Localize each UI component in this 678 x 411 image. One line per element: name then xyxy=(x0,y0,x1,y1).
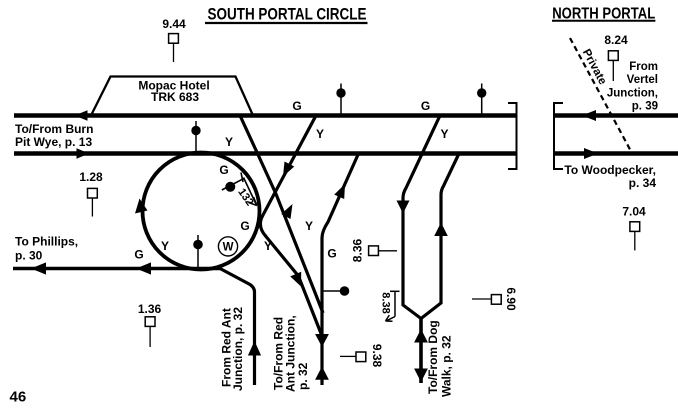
svg-text:8.38: 8.38 xyxy=(380,292,392,313)
svg-text:p. 30: p. 30 xyxy=(15,249,43,263)
svg-text:Y: Y xyxy=(225,135,233,149)
svg-text:9.44: 9.44 xyxy=(162,17,186,31)
svg-text:Vertel: Vertel xyxy=(627,74,658,86)
svg-text:G: G xyxy=(327,247,336,261)
svg-text:p. 32: p. 32 xyxy=(296,362,310,390)
svg-text:To Phillips,: To Phillips, xyxy=(15,235,78,249)
svg-text:Y: Y xyxy=(316,127,324,141)
svg-text:Y: Y xyxy=(440,127,448,141)
svg-text:p. 34: p. 34 xyxy=(629,176,657,190)
svg-text:SOUTH PORTAL CIRCLE: SOUTH PORTAL CIRCLE xyxy=(208,5,367,24)
svg-text:1.28: 1.28 xyxy=(79,170,103,184)
svg-text:G: G xyxy=(421,99,430,113)
svg-text:6.90: 6.90 xyxy=(504,287,518,311)
svg-text:To/From Burn: To/From Burn xyxy=(15,122,93,136)
svg-text:G: G xyxy=(219,163,228,177)
svg-text:p. 39: p. 39 xyxy=(632,101,658,113)
svg-text:TRK 683: TRK 683 xyxy=(151,90,199,104)
svg-text:G: G xyxy=(134,248,143,262)
svg-text:Pit Wye, p. 13: Pit Wye, p. 13 xyxy=(15,135,92,149)
svg-text:7.04: 7.04 xyxy=(622,205,646,219)
svg-text:Junction,: Junction, xyxy=(607,88,658,100)
svg-text:G: G xyxy=(240,219,249,233)
svg-text:Y: Y xyxy=(305,219,313,233)
svg-text:To Woodpecker,: To Woodpecker, xyxy=(564,163,656,177)
svg-text:8.36: 8.36 xyxy=(351,238,365,262)
svg-text:W: W xyxy=(223,242,234,254)
svg-text:46: 46 xyxy=(10,389,27,406)
svg-text:9.38: 9.38 xyxy=(370,344,384,368)
svg-text:From: From xyxy=(629,61,658,73)
svg-text:Y: Y xyxy=(264,239,272,253)
svg-text:1.36: 1.36 xyxy=(138,302,162,316)
svg-text:Junction, p. 32: Junction, p. 32 xyxy=(231,307,245,391)
svg-text:Y: Y xyxy=(161,239,169,253)
svg-text:8.24: 8.24 xyxy=(604,33,628,47)
svg-text:G: G xyxy=(292,99,301,113)
svg-text:To/From Dog: To/From Dog xyxy=(426,320,440,394)
svg-text:Walk, p. 32: Walk, p. 32 xyxy=(440,335,454,397)
